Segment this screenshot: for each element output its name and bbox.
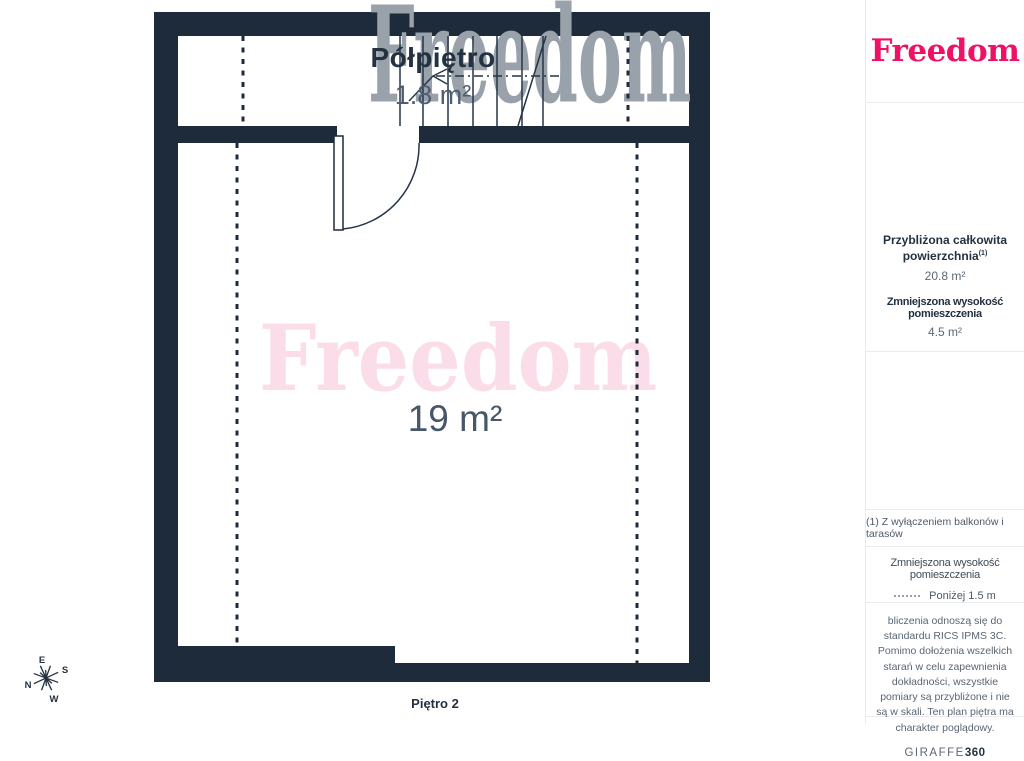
legend-item-label: Poniżej 1.5 m xyxy=(929,590,996,602)
reduced-height-label: Zmniejszona wysokość pomieszczenia xyxy=(866,296,1024,320)
reduced-height-value: 4.5 m² xyxy=(866,325,1024,339)
door-leaf xyxy=(334,136,343,230)
giraffe-logo-text: GIRAFFE xyxy=(904,747,964,759)
info-sidebar: Freedom Przybliżona całkowita powierzchn… xyxy=(865,0,1024,724)
compass-icon: E S N W xyxy=(25,655,69,705)
compass-s-label: S xyxy=(62,665,68,676)
total-area-label: Przybliżona całkowita powierzchnia(1) xyxy=(866,232,1024,264)
giraffe-logo-360: 360 xyxy=(965,747,986,759)
stats-section: Przybliżona całkowita powierzchnia(1) 20… xyxy=(866,103,1024,352)
total-area-label-line2: powierzchnia xyxy=(903,249,979,263)
footnote-section: (1) Z wyłączeniem balkonów i tarasów xyxy=(866,510,1024,547)
floorplan-linework: E S N W xyxy=(0,0,865,724)
total-area-value: 20.8 m² xyxy=(866,269,1024,283)
disclaimer-text: bliczenia odnoszą się do standardu RICS … xyxy=(874,614,1016,736)
dashed-line-sample-icon xyxy=(894,595,920,597)
freedom-logo: Freedom xyxy=(871,33,1020,69)
door xyxy=(334,136,419,230)
stairs xyxy=(400,36,546,126)
legend-title: Zmniejszona wysokość pomieszczenia xyxy=(866,557,1024,581)
disclaimer-section: bliczenia odnoszą się do standardu RICS … xyxy=(866,603,1024,717)
legend-section: Zmniejszona wysokość pomieszczenia Poniż… xyxy=(866,547,1024,603)
stairs-walk-line xyxy=(409,69,561,101)
giraffe360-logo: GIRAFFE360 xyxy=(874,745,1016,761)
reduced-height-dashed-lines xyxy=(237,36,637,663)
total-area-label-line1: Przybliżona całkowita xyxy=(883,233,1007,247)
compass-n-label: N xyxy=(25,680,32,691)
footnote-marker: (1) xyxy=(979,250,988,257)
compass-w-label: W xyxy=(50,694,59,705)
logo-section: Freedom xyxy=(866,0,1024,103)
compass-e-label: E xyxy=(39,655,45,666)
footnote-text: (1) Z wyłączeniem balkonów i tarasów xyxy=(866,516,1024,540)
door-swing-arc xyxy=(343,143,419,229)
spacer-section xyxy=(866,352,1024,510)
